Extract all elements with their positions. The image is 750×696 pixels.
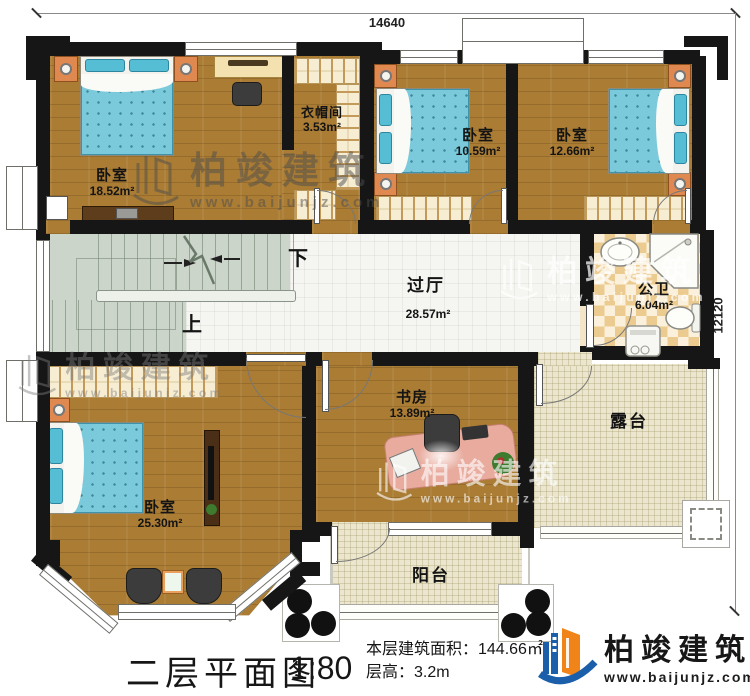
room-name: 过厅 (366, 276, 486, 295)
room-name: 卧室 (522, 128, 622, 145)
room-label-bathroom: 公卫 6.04m² (606, 282, 702, 312)
room-name: 卧室 (100, 500, 220, 517)
window-bedroom-tm-top (400, 50, 458, 64)
bay-window-left-upper (6, 166, 38, 230)
brand-text: 柏竣建筑 www.baijunjz.com (604, 625, 750, 685)
window-line (589, 57, 663, 58)
room-label-cloakroom: 衣帽间 3.53m² (286, 106, 358, 134)
lamp-icon (380, 70, 392, 82)
tv-icon (208, 446, 214, 500)
bed-pillow (379, 132, 392, 164)
stair-up-label: 上 (182, 314, 202, 336)
room-area: 25.30m² (100, 517, 220, 530)
dim-line-top (36, 13, 736, 14)
room-label-terrace: 露台 (586, 412, 672, 431)
window-line (43, 241, 44, 351)
opening-terrace-door (538, 352, 592, 366)
room-label-bedroom-tm: 卧室 10.59m² (428, 128, 528, 158)
room-name: 卧室 (52, 168, 172, 185)
wall-cloak-right (360, 56, 374, 220)
laptop-icon (116, 208, 138, 219)
room-label-balcony: 阳台 (388, 566, 474, 585)
bed-pillow (85, 59, 125, 72)
room-label-hall: 过厅 (366, 276, 486, 295)
door-leaf-bedroom-tl (46, 196, 68, 220)
wall-study-right (518, 352, 534, 526)
closet (336, 84, 360, 190)
room-area: 12.66m² (522, 145, 622, 158)
nightstand (174, 56, 198, 82)
window-line (22, 361, 23, 421)
plant-icon (492, 452, 514, 474)
bed-pillow (674, 132, 687, 164)
room-area: 28.57m² (368, 308, 488, 321)
room-name: 露台 (586, 412, 672, 431)
notch-terrace-h (688, 358, 720, 369)
floor-plan-canvas: 14640 12120 下 上 (0, 0, 750, 696)
wall-bedrooms-bottom (36, 220, 706, 234)
window-bedroom-tl-top (185, 42, 297, 56)
bed-pillow (49, 428, 63, 464)
dim-top-label: 14640 (355, 15, 419, 30)
window-line (389, 529, 491, 530)
room-label-bedroom-bl: 卧室 25.30m² (100, 500, 220, 530)
room-label-bedroom-tr: 卧室 12.66m² (522, 128, 622, 158)
window-study-bottom (388, 522, 492, 536)
room-name: 公卫 (606, 282, 702, 299)
room-label-hall-area: 28.57m² (368, 308, 488, 321)
window-bl-bay-bottom (118, 604, 236, 620)
window-line (22, 167, 23, 229)
window-bay-top (462, 18, 584, 64)
skylight-symbol (682, 500, 730, 548)
room-area: 13.89m² (352, 407, 472, 420)
nightstand (374, 64, 397, 88)
bed-sheet (656, 89, 673, 173)
side-table-glow (165, 573, 181, 591)
column-dot (285, 613, 310, 638)
lamp-icon (53, 404, 65, 416)
lamp-icon (674, 70, 686, 82)
bed-pillow (379, 94, 392, 126)
room-area: 18.52m² (52, 185, 172, 198)
room-area: 3.53m² (286, 121, 358, 134)
column-dot (501, 613, 526, 638)
door-leaf-bathroom (586, 304, 594, 348)
window-line (463, 41, 583, 42)
lamp-icon (60, 63, 72, 75)
plan-floor-height-line: 层高：3.2m (366, 661, 543, 684)
room-label-bedroom-tl: 卧室 18.52m² (52, 168, 172, 198)
armchair (186, 568, 222, 604)
opening-tl-cloak (282, 150, 294, 220)
window-line (119, 612, 235, 613)
room-label-study: 书房 13.89m² (352, 390, 472, 420)
room-name: 衣帽间 (286, 106, 358, 121)
wardrobe (376, 196, 472, 222)
column-dot (311, 611, 336, 636)
notch-tl-v (26, 36, 37, 80)
room-area: 10.59m² (428, 145, 528, 158)
skylight-dashed-square (690, 508, 722, 540)
lamp-icon (380, 178, 392, 190)
plan-area-line: 本层建筑面积：144.66㎡ (366, 638, 543, 661)
nightstand (668, 64, 691, 88)
lamp-icon (180, 63, 192, 75)
brand-logo-icon (538, 622, 598, 688)
opening-bedroom-tl-door (46, 220, 70, 234)
stair-handrail (96, 290, 296, 302)
closet (294, 58, 360, 84)
nightstand (374, 172, 397, 196)
room-name: 阳台 (388, 566, 474, 585)
armchair (126, 568, 162, 604)
room-name: 书房 (352, 390, 472, 407)
window-bedroom-tr-top (588, 50, 664, 64)
notch-tr-v (717, 36, 728, 80)
dim-line-right (735, 13, 736, 613)
bed-pillow (49, 468, 63, 504)
stair-down-label: 下 (288, 248, 308, 270)
room-area: 6.04m² (606, 299, 702, 312)
brand-logo: 柏竣建筑 www.baijunjz.com (538, 622, 750, 688)
window-stair-left (36, 240, 50, 352)
bed-pillow (674, 94, 687, 126)
wall-bay-right-notch (302, 542, 320, 562)
window-line (186, 49, 296, 50)
brand-url: www.baijunjz.com (604, 669, 750, 685)
wall-stub-balcony-corner (520, 522, 534, 548)
wardrobe (46, 366, 218, 398)
wall-right-upper (692, 56, 706, 230)
study-chair-glow (418, 440, 464, 472)
room-name: 卧室 (428, 128, 528, 145)
plan-info: 本层建筑面积：144.66㎡ 层高：3.2m (366, 638, 543, 684)
plan-scale: 1:80 (290, 650, 352, 687)
bed-pillow (129, 59, 169, 72)
desk-items (228, 60, 268, 66)
bay-window-left-lower (6, 360, 38, 422)
brand-name: 柏竣建筑 (604, 625, 750, 669)
window-line (401, 57, 457, 58)
desk-chair (232, 82, 262, 106)
nightstand (54, 56, 78, 82)
